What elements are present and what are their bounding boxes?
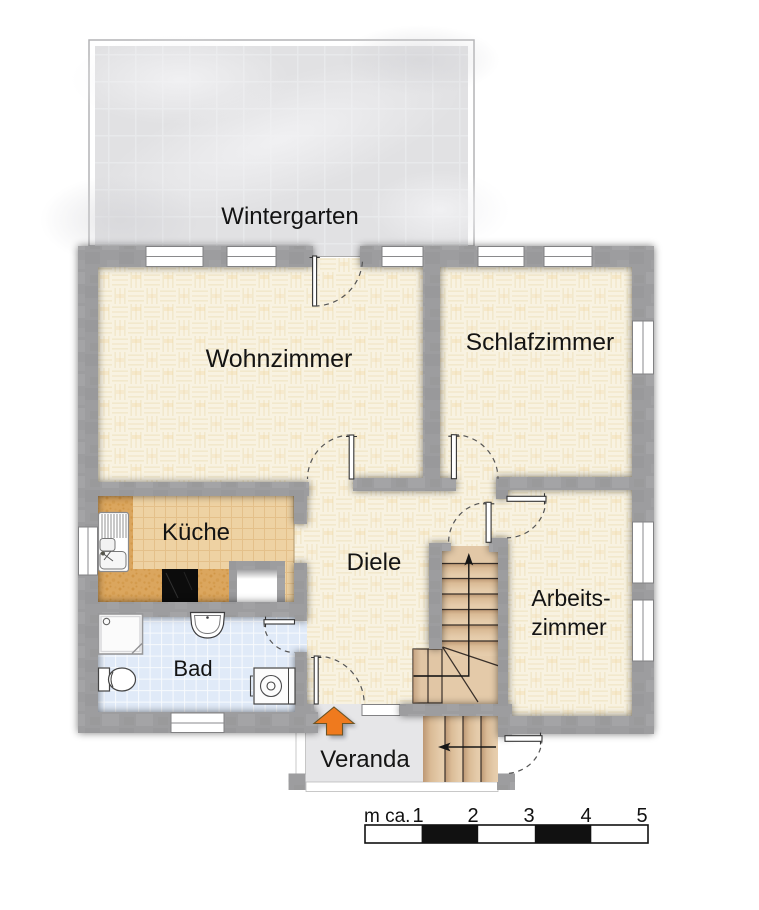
svg-text:Bad: Bad [173, 656, 212, 681]
svg-text:2: 2 [467, 805, 478, 827]
svg-text:zimmer: zimmer [531, 614, 607, 640]
svg-text:1: 1 [412, 805, 423, 827]
svg-text:Arbeits-: Arbeits- [531, 585, 610, 611]
svg-text:Schlafzimmer: Schlafzimmer [466, 329, 614, 356]
svg-text:Wohnzimmer: Wohnzimmer [206, 345, 353, 373]
svg-text:4: 4 [580, 805, 591, 827]
svg-text:Diele: Diele [347, 549, 402, 576]
svg-text:m ca.: m ca. [364, 806, 410, 827]
svg-text:3: 3 [523, 805, 534, 827]
svg-text:Veranda: Veranda [320, 746, 410, 773]
svg-text:Wintergarten: Wintergarten [221, 203, 358, 230]
svg-text:Küche: Küche [162, 519, 230, 546]
svg-text:5: 5 [636, 805, 647, 827]
